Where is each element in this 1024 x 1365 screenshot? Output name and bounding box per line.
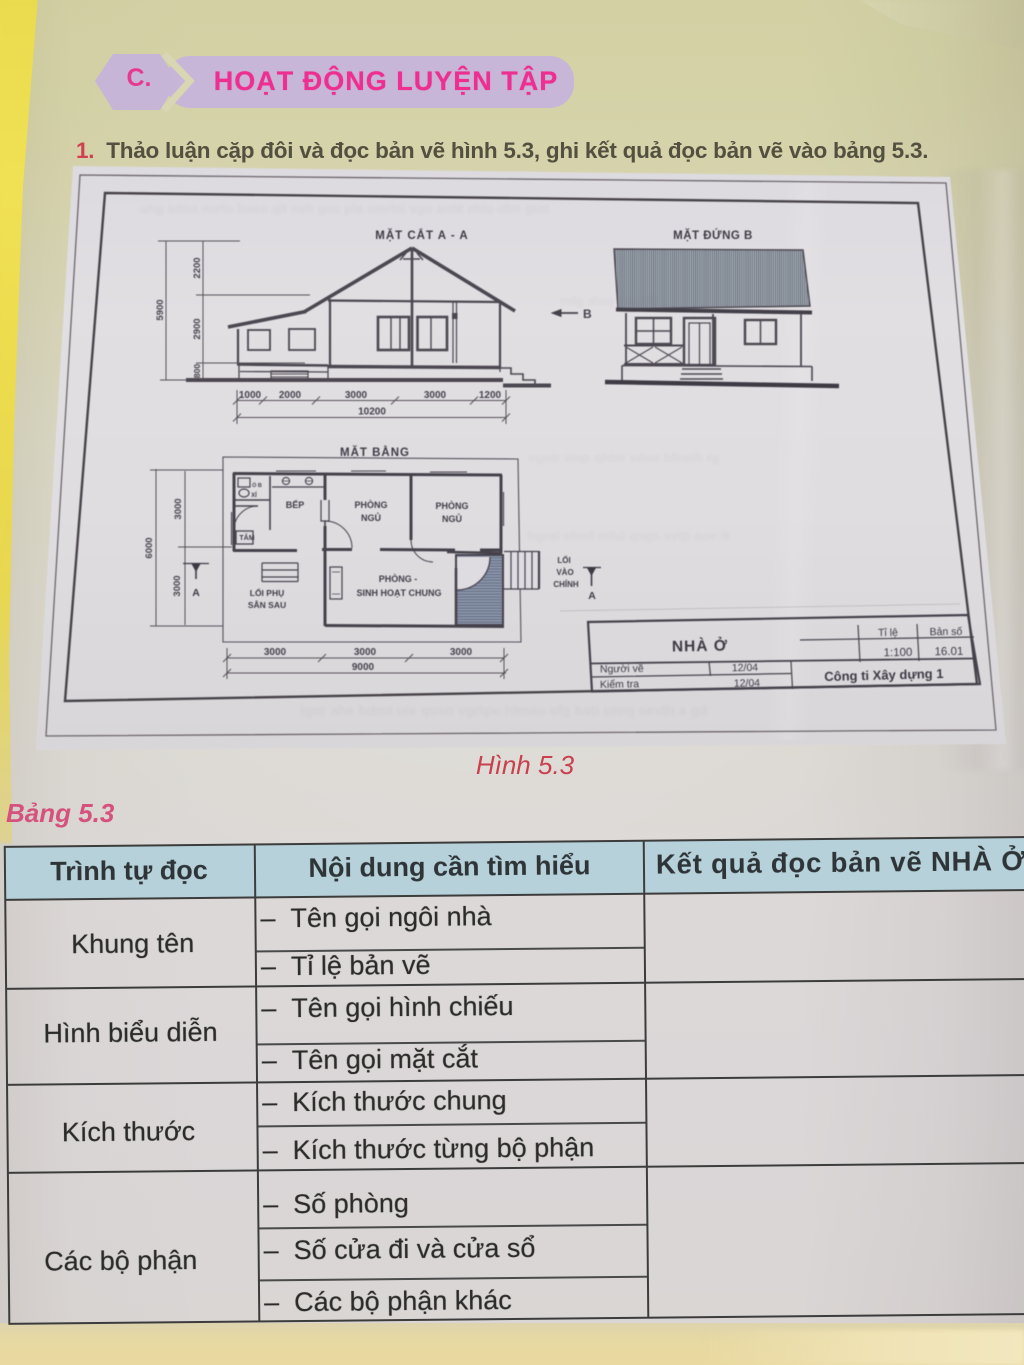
svg-text:NGỦ: NGỦ bbox=[361, 512, 381, 523]
svg-text:LỐI: LỐI bbox=[557, 555, 570, 565]
svg-text:XÍ: XÍ bbox=[251, 491, 257, 499]
svg-text:Bản số: Bản số bbox=[929, 626, 962, 639]
svg-text:800: 800 bbox=[192, 364, 202, 378]
svg-text:1:100: 1:100 bbox=[883, 647, 912, 660]
svg-text:5900: 5900 bbox=[155, 299, 166, 320]
svg-text:PHÒNG -: PHÒNG - bbox=[379, 573, 418, 584]
svg-text:bgral ehod mfui qngs vvtp aoe: bgral ehod mfui qngs vvtp aoe lk bbox=[528, 528, 732, 543]
svg-text:12/04: 12/04 bbox=[732, 662, 759, 674]
svg-text:3000: 3000 bbox=[173, 498, 184, 519]
svg-text:MẶT BẰNG: MẶT BẰNG bbox=[340, 446, 410, 459]
svg-text:12/04: 12/04 bbox=[734, 677, 761, 689]
svg-text:Công ti Xây dựng 1: Công ti Xây dựng 1 bbox=[824, 666, 944, 684]
svg-text:Kiểm tra: Kiểm tra bbox=[600, 678, 639, 691]
svg-text:NHÀ Ở: NHÀ Ở bbox=[672, 637, 728, 656]
svg-text:B: B bbox=[583, 307, 592, 321]
svg-text:A: A bbox=[588, 590, 596, 602]
svg-text:LỐI PHỤ: LỐI PHỤ bbox=[250, 587, 284, 598]
svg-text:3000: 3000 bbox=[424, 390, 447, 401]
svg-text:9000: 9000 bbox=[352, 662, 375, 673]
svg-text:SÂN SAU: SÂN SAU bbox=[248, 599, 286, 610]
svg-text:mfg aloq wej vb: mfg aloq wej vb bbox=[560, 293, 658, 308]
svg-text:Ổ B: Ổ B bbox=[252, 482, 262, 489]
svg-text:lgor ahe bdmt uie qosn vgrtpe: lgor ahe bdmt uie qosn vgrtpe hlmao efg … bbox=[300, 702, 708, 718]
svg-text:MẶT CẮT A - A: MẶT CẮT A - A bbox=[375, 229, 468, 242]
svg-text:NGỦ: NGỦ bbox=[442, 513, 462, 524]
svg-text:16.01: 16.01 bbox=[934, 646, 963, 659]
svg-text:2000: 2000 bbox=[279, 390, 302, 401]
svg-text:A: A bbox=[192, 587, 200, 599]
svg-text:1200: 1200 bbox=[479, 390, 502, 401]
svg-text:Tỉ lệ: Tỉ lệ bbox=[878, 627, 898, 639]
svg-text:10200: 10200 bbox=[358, 407, 386, 418]
svg-text:3000: 3000 bbox=[345, 390, 368, 401]
svg-text:vgotr elap qhtm sduo bfneih rg: vgotr elap qhtm sduo bfneih rg bbox=[528, 450, 719, 465]
svg-text:TẮM: TẮM bbox=[239, 533, 254, 542]
svg-text:2900: 2900 bbox=[192, 318, 203, 339]
svg-text:CHÍNH: CHÍNH bbox=[553, 580, 579, 589]
svg-text:3000: 3000 bbox=[172, 575, 183, 596]
svg-text:uhg sdna mirto baeo qlt nvh go: uhg sdna mirto baeo qlt nvh goc pla smrt… bbox=[140, 201, 549, 216]
svg-text:2200: 2200 bbox=[192, 257, 203, 278]
svg-text:3000: 3000 bbox=[354, 647, 377, 658]
svg-text:3000: 3000 bbox=[264, 647, 287, 658]
svg-text:PHÒNG: PHÒNG bbox=[435, 500, 468, 511]
svg-text:PHÒNG: PHÒNG bbox=[354, 499, 387, 510]
svg-text:Người vẽ: Người vẽ bbox=[600, 663, 644, 676]
svg-text:BẾP: BẾP bbox=[286, 500, 305, 510]
svg-text:1000: 1000 bbox=[239, 390, 262, 401]
svg-text:6000: 6000 bbox=[144, 537, 155, 558]
svg-text:3000: 3000 bbox=[450, 647, 473, 658]
svg-text:SINH HOẠT CHUNG: SINH HOẠT CHUNG bbox=[357, 588, 442, 598]
svg-text:MẶT ĐỨNG B: MẶT ĐỨNG B bbox=[673, 229, 753, 242]
svg-text:VÀO: VÀO bbox=[556, 568, 573, 577]
